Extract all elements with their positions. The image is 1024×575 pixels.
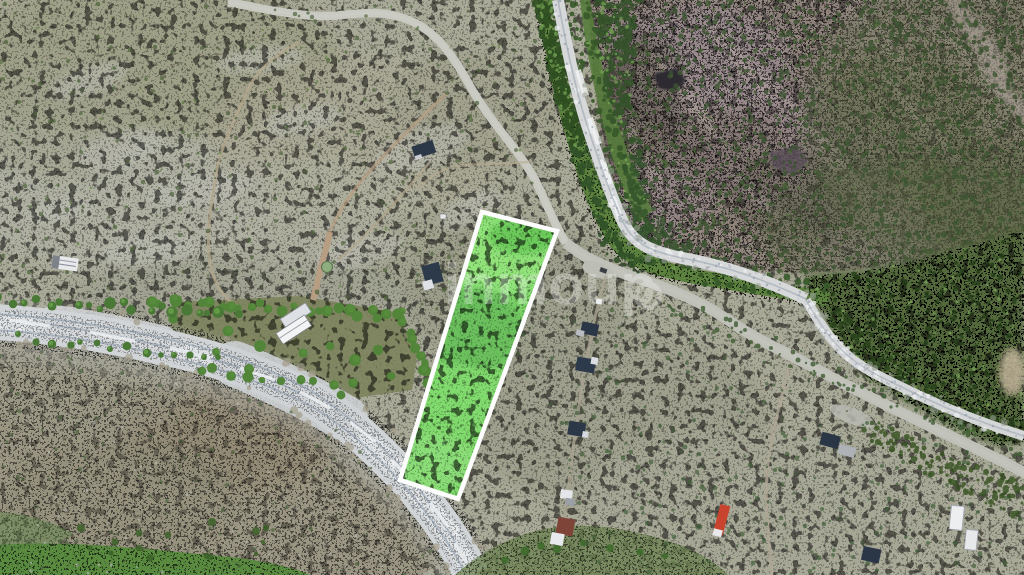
- svg-text:inmoup: inmoup: [444, 251, 656, 316]
